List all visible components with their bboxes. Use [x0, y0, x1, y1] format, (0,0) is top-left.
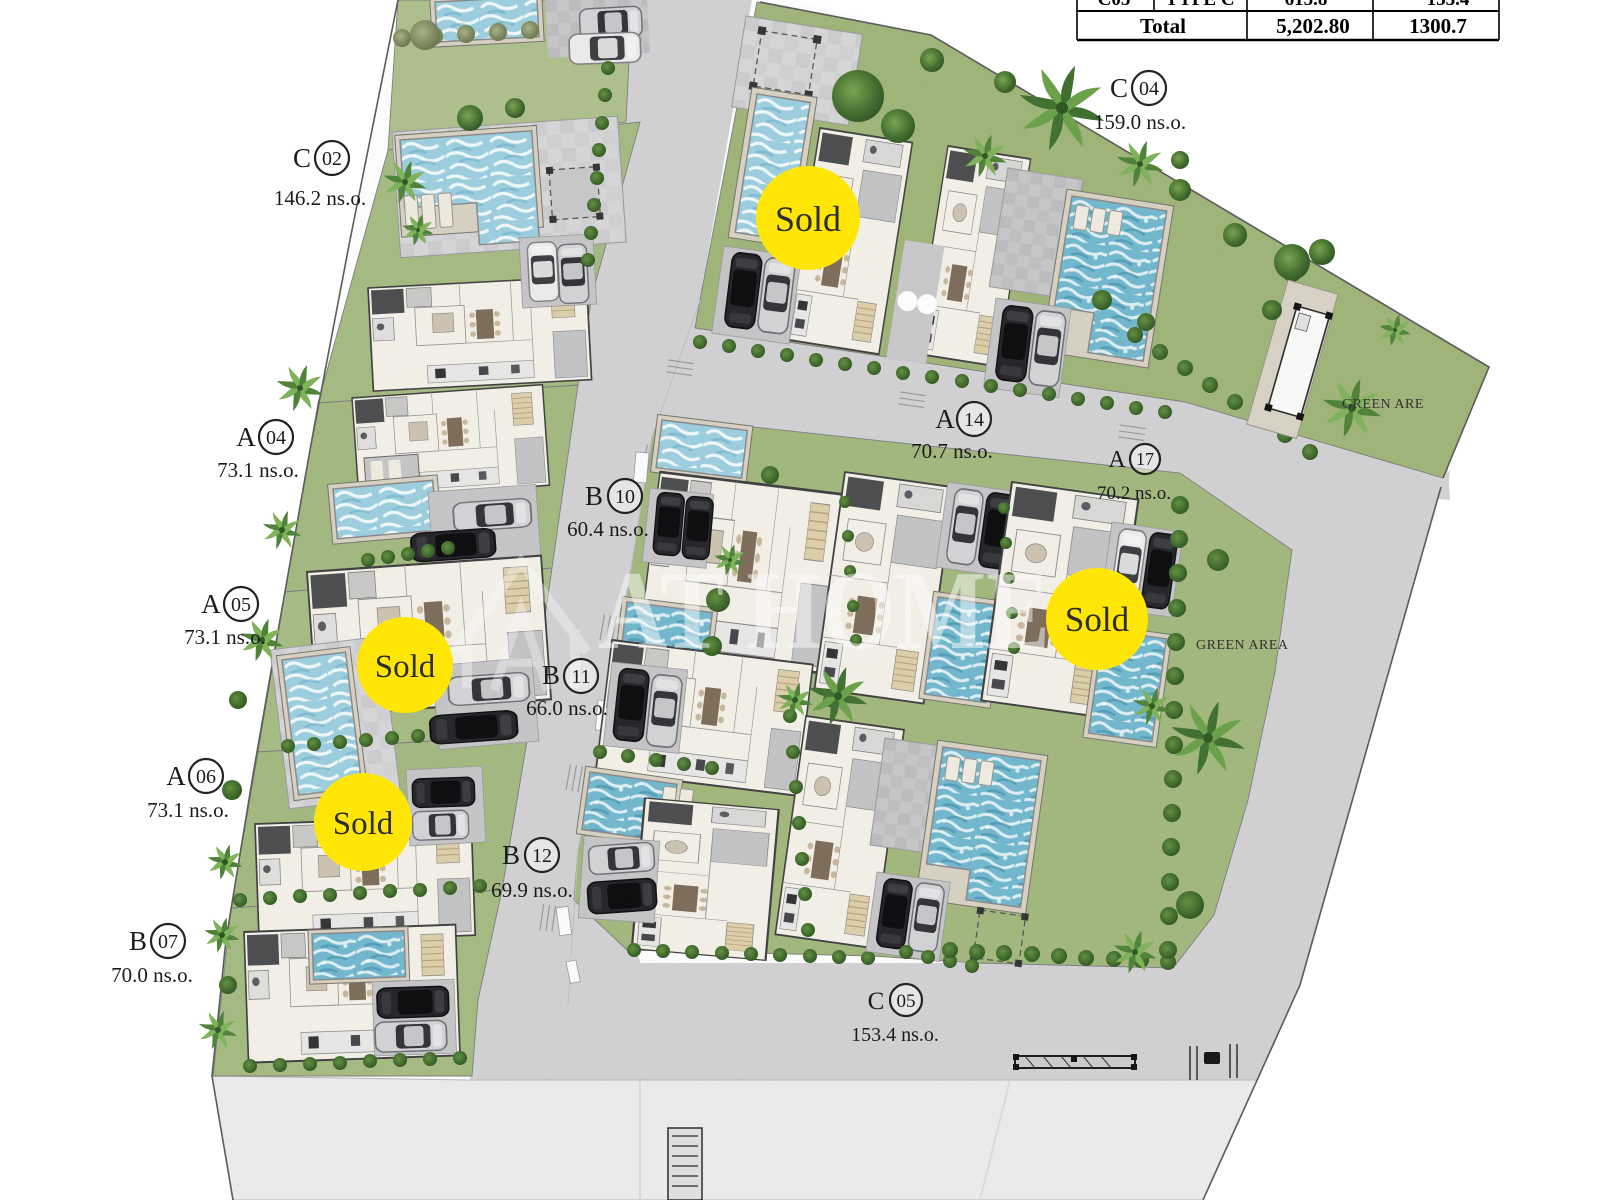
svg-text:B: B — [585, 481, 603, 511]
svg-text:153.4: 153.4 — [1427, 0, 1470, 10]
svg-text:66.0 ns.o.: 66.0 ns.o. — [526, 696, 608, 720]
svg-text:146.2 ns.o.: 146.2 ns.o. — [274, 186, 366, 210]
svg-text:A: A — [935, 404, 955, 434]
svg-text:73.1 ns.o.: 73.1 ns.o. — [184, 625, 266, 649]
svg-text:73.1 ns.o.: 73.1 ns.o. — [147, 798, 229, 822]
svg-text:73.1 ns.o.: 73.1 ns.o. — [217, 458, 299, 482]
svg-text:615.8: 615.8 — [1285, 0, 1328, 10]
svg-text:AT HOME: AT HOME — [598, 549, 1050, 673]
svg-text:C: C — [293, 143, 311, 173]
svg-text:70.7 ns.o.: 70.7 ns.o. — [911, 439, 993, 463]
svg-text:69.9 ns.o.: 69.9 ns.o. — [491, 878, 573, 902]
svg-text:60.4 ns.o.: 60.4 ns.o. — [567, 517, 649, 541]
svg-text:14: 14 — [964, 409, 984, 431]
svg-text:Sold: Sold — [333, 806, 394, 842]
svg-text:TYPE C: TYPE C — [1165, 0, 1234, 10]
svg-text:C: C — [868, 988, 885, 1015]
svg-text:153.4 ns.o.: 153.4 ns.o. — [851, 1024, 939, 1046]
svg-text:02: 02 — [322, 148, 342, 170]
svg-text:04: 04 — [266, 427, 286, 449]
svg-text:70.2 ns.o.: 70.2 ns.o. — [1097, 483, 1171, 504]
svg-text:B: B — [542, 660, 560, 690]
svg-text:05: 05 — [897, 991, 916, 1012]
svg-text:B: B — [129, 926, 147, 956]
svg-text:17: 17 — [1136, 449, 1154, 469]
svg-text:06: 06 — [196, 766, 216, 788]
svg-text:B: B — [502, 840, 520, 870]
svg-text:A: A — [1108, 447, 1126, 473]
svg-text:Sold: Sold — [1065, 600, 1130, 639]
svg-text:5,202.80: 5,202.80 — [1276, 14, 1350, 38]
svg-text:Sold: Sold — [375, 649, 436, 685]
svg-text:C05: C05 — [1098, 0, 1131, 10]
svg-text:A: A — [236, 422, 256, 452]
svg-text:12: 12 — [532, 845, 552, 867]
svg-text:10: 10 — [615, 486, 635, 508]
svg-text:04: 04 — [1139, 78, 1159, 100]
svg-text:Sold: Sold — [775, 199, 841, 239]
svg-text:70.0 ns.o.: 70.0 ns.o. — [111, 963, 193, 987]
svg-text:Total: Total — [1140, 14, 1186, 38]
svg-text:C: C — [1110, 73, 1128, 103]
svg-text:159.0 ns.o.: 159.0 ns.o. — [1094, 110, 1186, 134]
svg-text:A: A — [201, 589, 221, 619]
svg-text:A: A — [166, 761, 186, 791]
svg-text:05: 05 — [231, 594, 251, 616]
svg-text:1300.7: 1300.7 — [1409, 14, 1467, 38]
svg-text:11: 11 — [571, 666, 590, 688]
svg-text:07: 07 — [158, 931, 178, 953]
